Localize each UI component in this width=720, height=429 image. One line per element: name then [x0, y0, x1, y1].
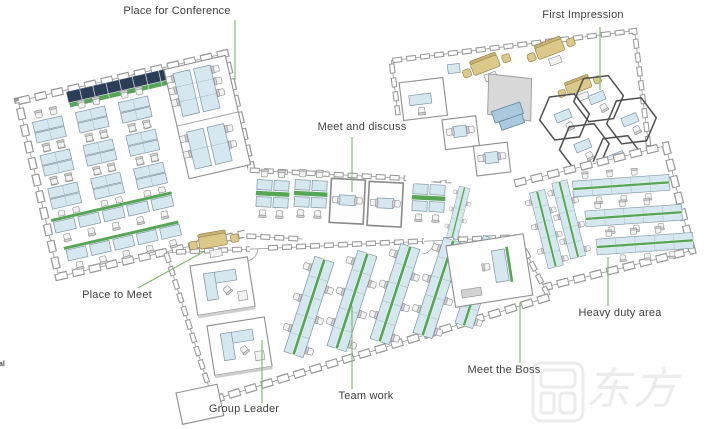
small-meeting-room — [473, 142, 510, 176]
watermark-characters: 东方华奥 — [586, 358, 720, 426]
left-wing — [18, 53, 265, 276]
meeting-pod — [329, 178, 365, 224]
page: { "labels": { "conference": "Place for C… — [0, 0, 720, 429]
label-heavy-duty-area: Heavy duty area — [578, 307, 661, 319]
small-meeting-room — [442, 116, 479, 150]
edge-text-fragment: al — [0, 361, 5, 368]
group-leader-office — [207, 317, 273, 378]
label-place-for-conference: Place for Conference — [123, 5, 230, 17]
label-place-to-meet: Place to Meet — [82, 289, 152, 301]
meeting-pod — [367, 181, 403, 227]
group-leader-office — [190, 257, 256, 318]
label-meet-the-boss: Meet the Boss — [468, 364, 541, 376]
label-meet-and-discuss: Meet and discuss — [318, 121, 407, 133]
corner-office — [399, 77, 447, 120]
label-first-impression: First Impression — [542, 9, 623, 21]
side-table — [447, 63, 460, 73]
label-team-work: Team work — [339, 390, 394, 402]
boss-office — [446, 234, 533, 307]
label-group-leader: Group Leader — [209, 403, 279, 415]
